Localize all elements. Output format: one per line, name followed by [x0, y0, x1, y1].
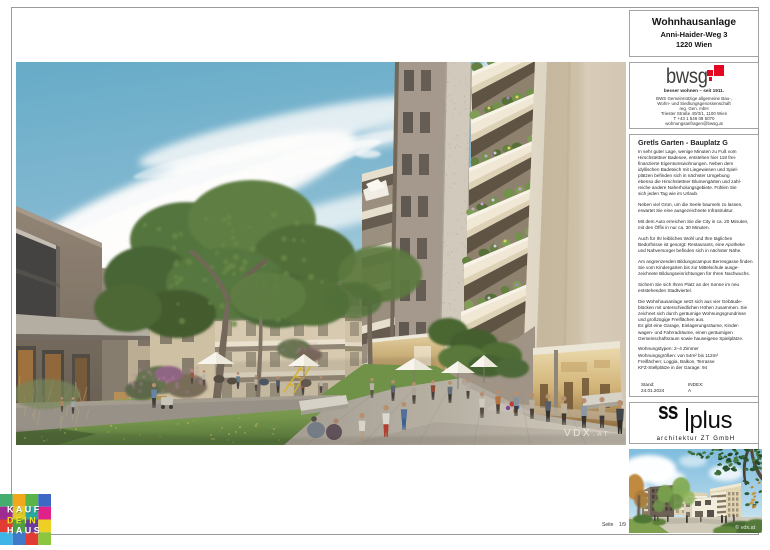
svg-text:© vdx.at: © vdx.at: [735, 524, 756, 531]
svg-text:DEIN: DEIN: [7, 515, 38, 525]
svg-text:KAUF: KAUF: [7, 505, 42, 515]
svg-text:HAUS: HAUS: [7, 525, 42, 535]
